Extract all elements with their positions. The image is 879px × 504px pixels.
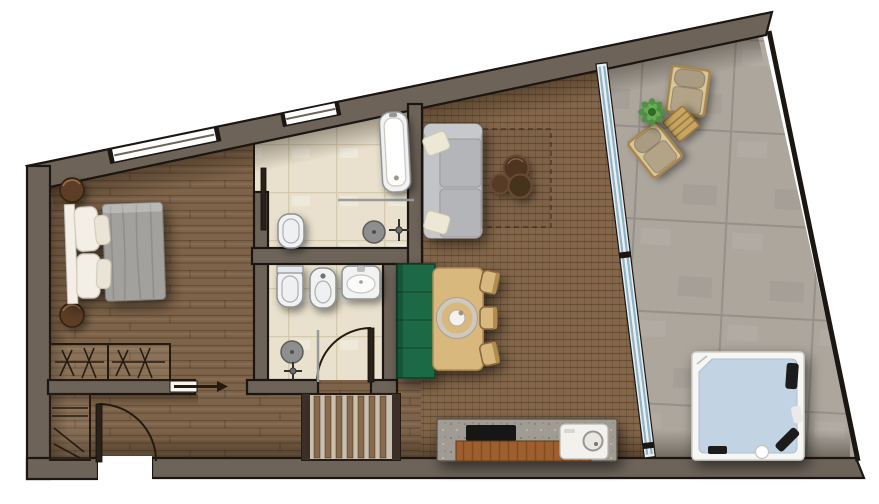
bottom-wall-left xyxy=(27,458,98,479)
wall-bath2-right xyxy=(383,264,397,394)
dining-set xyxy=(397,264,500,378)
bidet xyxy=(310,268,336,308)
shower-drain-1 xyxy=(363,221,385,243)
accent-pillow-2 xyxy=(96,259,111,288)
bathtub xyxy=(379,111,411,192)
shoe-closet xyxy=(50,394,90,460)
floor-plan-canvas xyxy=(0,0,879,504)
dining-chair-1 xyxy=(479,270,500,295)
nightstand-round-2 xyxy=(60,303,84,327)
toilet-bath1 xyxy=(278,214,304,248)
left-wall xyxy=(27,166,50,479)
nightstand-round-1 xyxy=(60,178,84,202)
toilet-bath2 xyxy=(277,266,303,307)
lounge-chair-1 xyxy=(666,66,710,117)
tub-control-knob xyxy=(756,446,769,459)
wall-bath2-bottom-left xyxy=(247,380,318,394)
wall-bath2-bottom-right xyxy=(371,380,397,394)
dining-chair-3 xyxy=(479,341,500,366)
kitchen-counter xyxy=(437,419,617,461)
potted-plant xyxy=(638,98,666,126)
floor-plan-drawing xyxy=(0,0,879,504)
slatted-staircase xyxy=(302,394,400,460)
wardrobe-two-section xyxy=(50,344,170,380)
tub-headrest-3 xyxy=(708,446,727,454)
stair-slats xyxy=(314,396,386,458)
tub-headrest-1 xyxy=(785,363,799,390)
cooktop xyxy=(466,425,516,441)
shower-drain-2 xyxy=(281,341,303,363)
washbasin xyxy=(342,266,380,299)
dining-chair-2 xyxy=(480,307,497,329)
round-sink xyxy=(560,424,608,459)
two-seat-sofa xyxy=(422,124,482,238)
wall-between-baths xyxy=(252,248,422,264)
accent-pillow-1 xyxy=(94,215,111,245)
hot-tub xyxy=(692,352,804,460)
pocket-door-bath1 xyxy=(261,168,266,230)
entrance-opening xyxy=(98,456,152,482)
